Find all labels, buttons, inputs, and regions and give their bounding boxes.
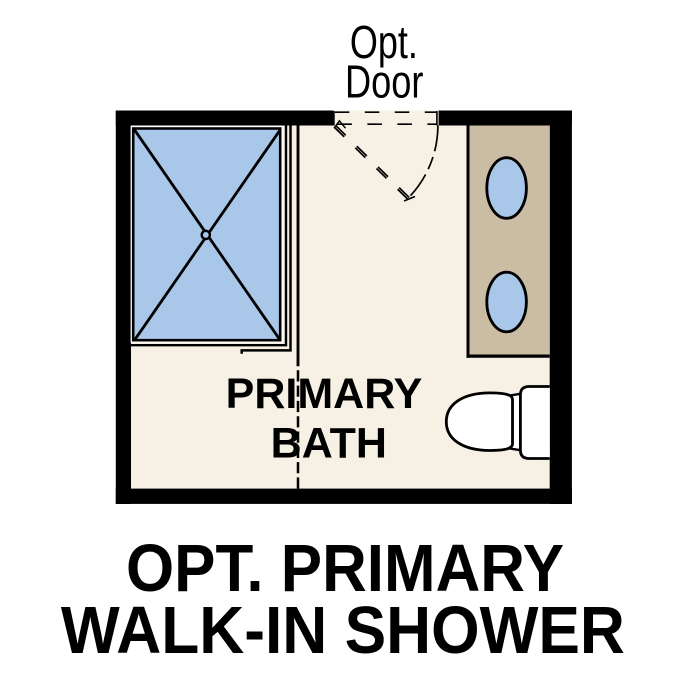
- svg-text:PRIMARY: PRIMARY: [226, 370, 423, 418]
- svg-text:BATH: BATH: [271, 419, 387, 467]
- svg-text:WALK-IN SHOWER: WALK-IN SHOWER: [61, 593, 625, 668]
- svg-text:Door: Door: [345, 56, 424, 108]
